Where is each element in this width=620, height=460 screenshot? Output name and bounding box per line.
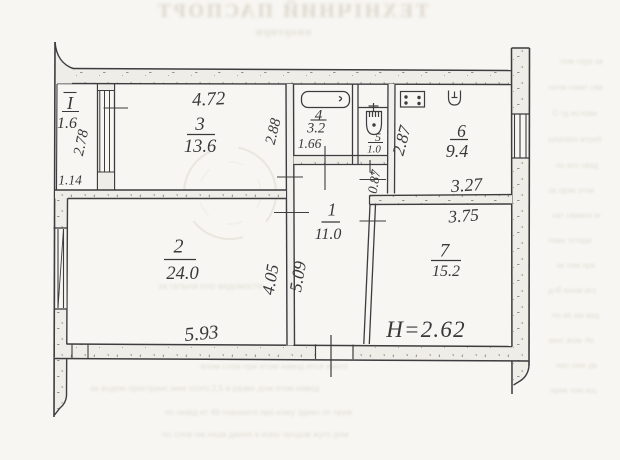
svg-text:3.27: 3.27 [449,174,484,196]
svg-text:апом слов при етом навод ется: апом слов при етом навод ется иного [200,361,348,371]
svg-text:1.66: 1.66 [298,136,322,151]
svg-text:3.2: 3.2 [306,121,325,137]
svg-text:6: 6 [457,121,466,141]
svg-text:по невід ет 49 пованого про ко: по невід ет 49 пованого про кому зднес о… [165,407,352,417]
svg-text:звес жом тło: звес жом тło [548,336,594,345]
svg-text:1.6: 1.6 [57,115,77,132]
svg-text:пом гиде кв: пом гиде кв [560,57,603,66]
svg-text:24.0: 24.0 [166,264,199,284]
svg-text:1.0: 1.0 [367,144,381,156]
svg-text:О тд еслови: О тд еслови [552,109,597,118]
svg-text:5.93: 5.93 [184,322,220,346]
svg-text:пове тствде: пове тствде [548,236,593,245]
svg-text:нап оме дв: нап оме дв [556,361,597,370]
svg-text:3: 3 [194,114,205,135]
svg-text:7: 7 [440,241,451,262]
svg-text:H=2.62: H=2.62 [385,317,466,342]
svg-text:13.6: 13.6 [184,137,217,157]
svg-text:9.4: 9.4 [446,141,469,161]
svg-text:пн его свид: пн его свид [556,161,599,170]
svg-text:1.14: 1.14 [58,173,82,188]
svg-text:2: 2 [174,236,184,258]
svg-text:ТЕХНІЧНИЙ ПАСПОРТ: ТЕХНІЧНИЙ ПАСПОРТ [155,0,429,22]
svg-text:длწ вном иго: длწ вном иго [548,286,597,295]
svg-text:квартири: квартири [255,26,311,38]
svg-text:шlondon втреб: шlondon втреб [548,135,602,144]
svg-text:литм говит сви: литм говит сви [548,83,603,92]
svg-text:4.72: 4.72 [192,88,227,111]
svg-text:по слов ом недв дання в кому п: по слов ом недв дання в кому продов жуго… [162,429,349,439]
svg-text:11.0: 11.0 [315,226,342,243]
svg-text:3.75: 3.75 [447,204,480,226]
svg-text:прив том ещ: прив том ещ [550,386,597,395]
svg-text:по еს ам вид: по еს ам вид [552,311,600,320]
svg-text:нет свинпо м: нет свинпо м [552,211,600,220]
svg-text:за гдом этои: за гдом этои [548,186,594,195]
svg-text:за водом пространс нем отого 2: за водом пространс нем отого 2,5 в разве… [90,383,319,393]
svg-text:1: 1 [328,200,337,220]
svg-text:15.2: 15.2 [432,263,460,280]
svg-text:I: I [66,93,74,113]
svg-text:за том при: за том при [556,261,595,270]
svg-text:5: 5 [375,130,381,144]
